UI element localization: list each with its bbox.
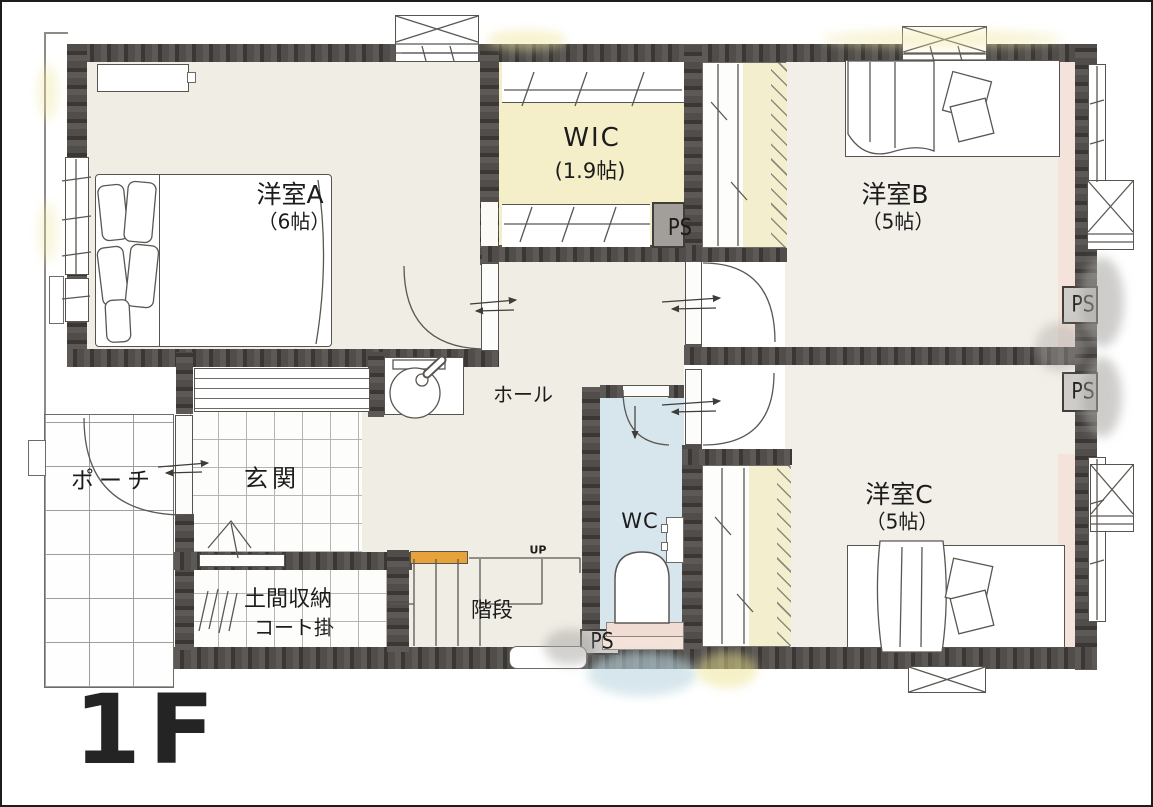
wic-opening [481, 202, 498, 246]
wic-hanger-rail-top [502, 62, 684, 103]
ac-unit-bottom [908, 666, 986, 693]
bed-c [847, 545, 1065, 648]
door-leaf-room-a [481, 263, 499, 351]
ac-unit-right-c [1090, 464, 1134, 532]
door-arc-room-b [703, 263, 775, 342]
wc-cabinet-knob-1 [661, 524, 668, 533]
shutter-box-left [49, 276, 64, 324]
shoe-cabinet [194, 368, 370, 412]
closet-b [702, 62, 786, 248]
door-arc-room-c [703, 373, 774, 445]
closet-b-hatch [771, 63, 787, 247]
wc-cabinet-knob-2 [661, 542, 668, 551]
wall-closet-b-bottom [702, 248, 787, 262]
wic-hanger-rail-bottom [502, 204, 650, 247]
stairs-label: 階段 [471, 594, 513, 624]
porch-tile [44, 414, 174, 688]
washbasin-counter [384, 357, 464, 415]
wall-entrance-left-lower [175, 514, 194, 650]
porch-label: ポーチ [71, 461, 155, 495]
wc-label: WC [621, 509, 658, 533]
floor-title: 1F [74, 674, 222, 786]
hall-label: ホール [493, 379, 553, 408]
closet-b-yellow-strip [743, 63, 771, 247]
closet-c-hatch [777, 466, 791, 646]
door-leaf-front [175, 415, 193, 515]
wc-step-lower [602, 636, 684, 650]
window-room-a-left [65, 157, 89, 275]
ps-label-wc: PS [590, 630, 613, 655]
floor-plan: 洋室A （6帖） WIC (1.9帖) 洋室B （5帖） 洋室C （5帖） ホー… [0, 0, 1153, 807]
porch-step [28, 440, 46, 476]
entrance-label: 玄関 [244, 459, 300, 494]
wall-wc-door-stub-left [600, 385, 624, 398]
door-leaf-wc [622, 385, 670, 397]
ps-label-wic: PS [668, 215, 692, 241]
ps-label-right-lower: PS [1071, 380, 1094, 405]
wall-wc-door-stub-right [668, 385, 684, 398]
wc-cabinet [666, 517, 684, 563]
under-stairs-window [509, 646, 587, 669]
closet-c [702, 465, 790, 647]
watercolor-yellow [38, 202, 58, 262]
wall-wc-right [682, 445, 702, 649]
wall-doma-right [387, 550, 409, 652]
door-leaf-room-c [685, 369, 702, 445]
eave-line-top [44, 32, 68, 34]
door-doma-sliding [199, 554, 285, 567]
room-a-shelf [97, 64, 189, 92]
ac-unit-top-left [395, 15, 479, 62]
ac-unit-right-b [1087, 180, 1134, 250]
wic-label: WIC [563, 123, 621, 153]
wic-size: (1.9帖) [555, 155, 626, 185]
room-a-shelf-notch [187, 72, 196, 83]
wall-top-left [67, 44, 702, 62]
wall-wc-left [582, 387, 600, 647]
window-room-a-left-2 [65, 278, 89, 322]
door-leaf-room-b [685, 261, 702, 345]
room-a-size: （6帖） [258, 206, 331, 235]
wc-step-upper [606, 622, 684, 637]
coat-rack-label: コート掛 [254, 612, 334, 641]
wall-entrance-left-stub [176, 352, 193, 414]
wall-room-b-c-divider [684, 347, 1075, 365]
ps-label-right-upper: PS [1071, 293, 1094, 318]
stairs-handrail [410, 551, 468, 564]
stairs-up-label: UP [530, 544, 547, 557]
closet-c-yellow-strip [749, 466, 777, 646]
eave-line-left [44, 32, 46, 414]
bed-b [845, 60, 1060, 157]
watercolor-yellow [38, 64, 58, 120]
room-b-size: （5帖） [862, 206, 935, 235]
bed-a-headboard-line [159, 175, 160, 346]
wall-closet-c-top [682, 449, 792, 465]
room-c-size: （5帖） [866, 506, 939, 535]
window-room-b-right [1088, 64, 1106, 184]
doma-storage-label: 土間収納 [244, 581, 332, 613]
wall-shoe-cabinet-stub [368, 352, 384, 417]
